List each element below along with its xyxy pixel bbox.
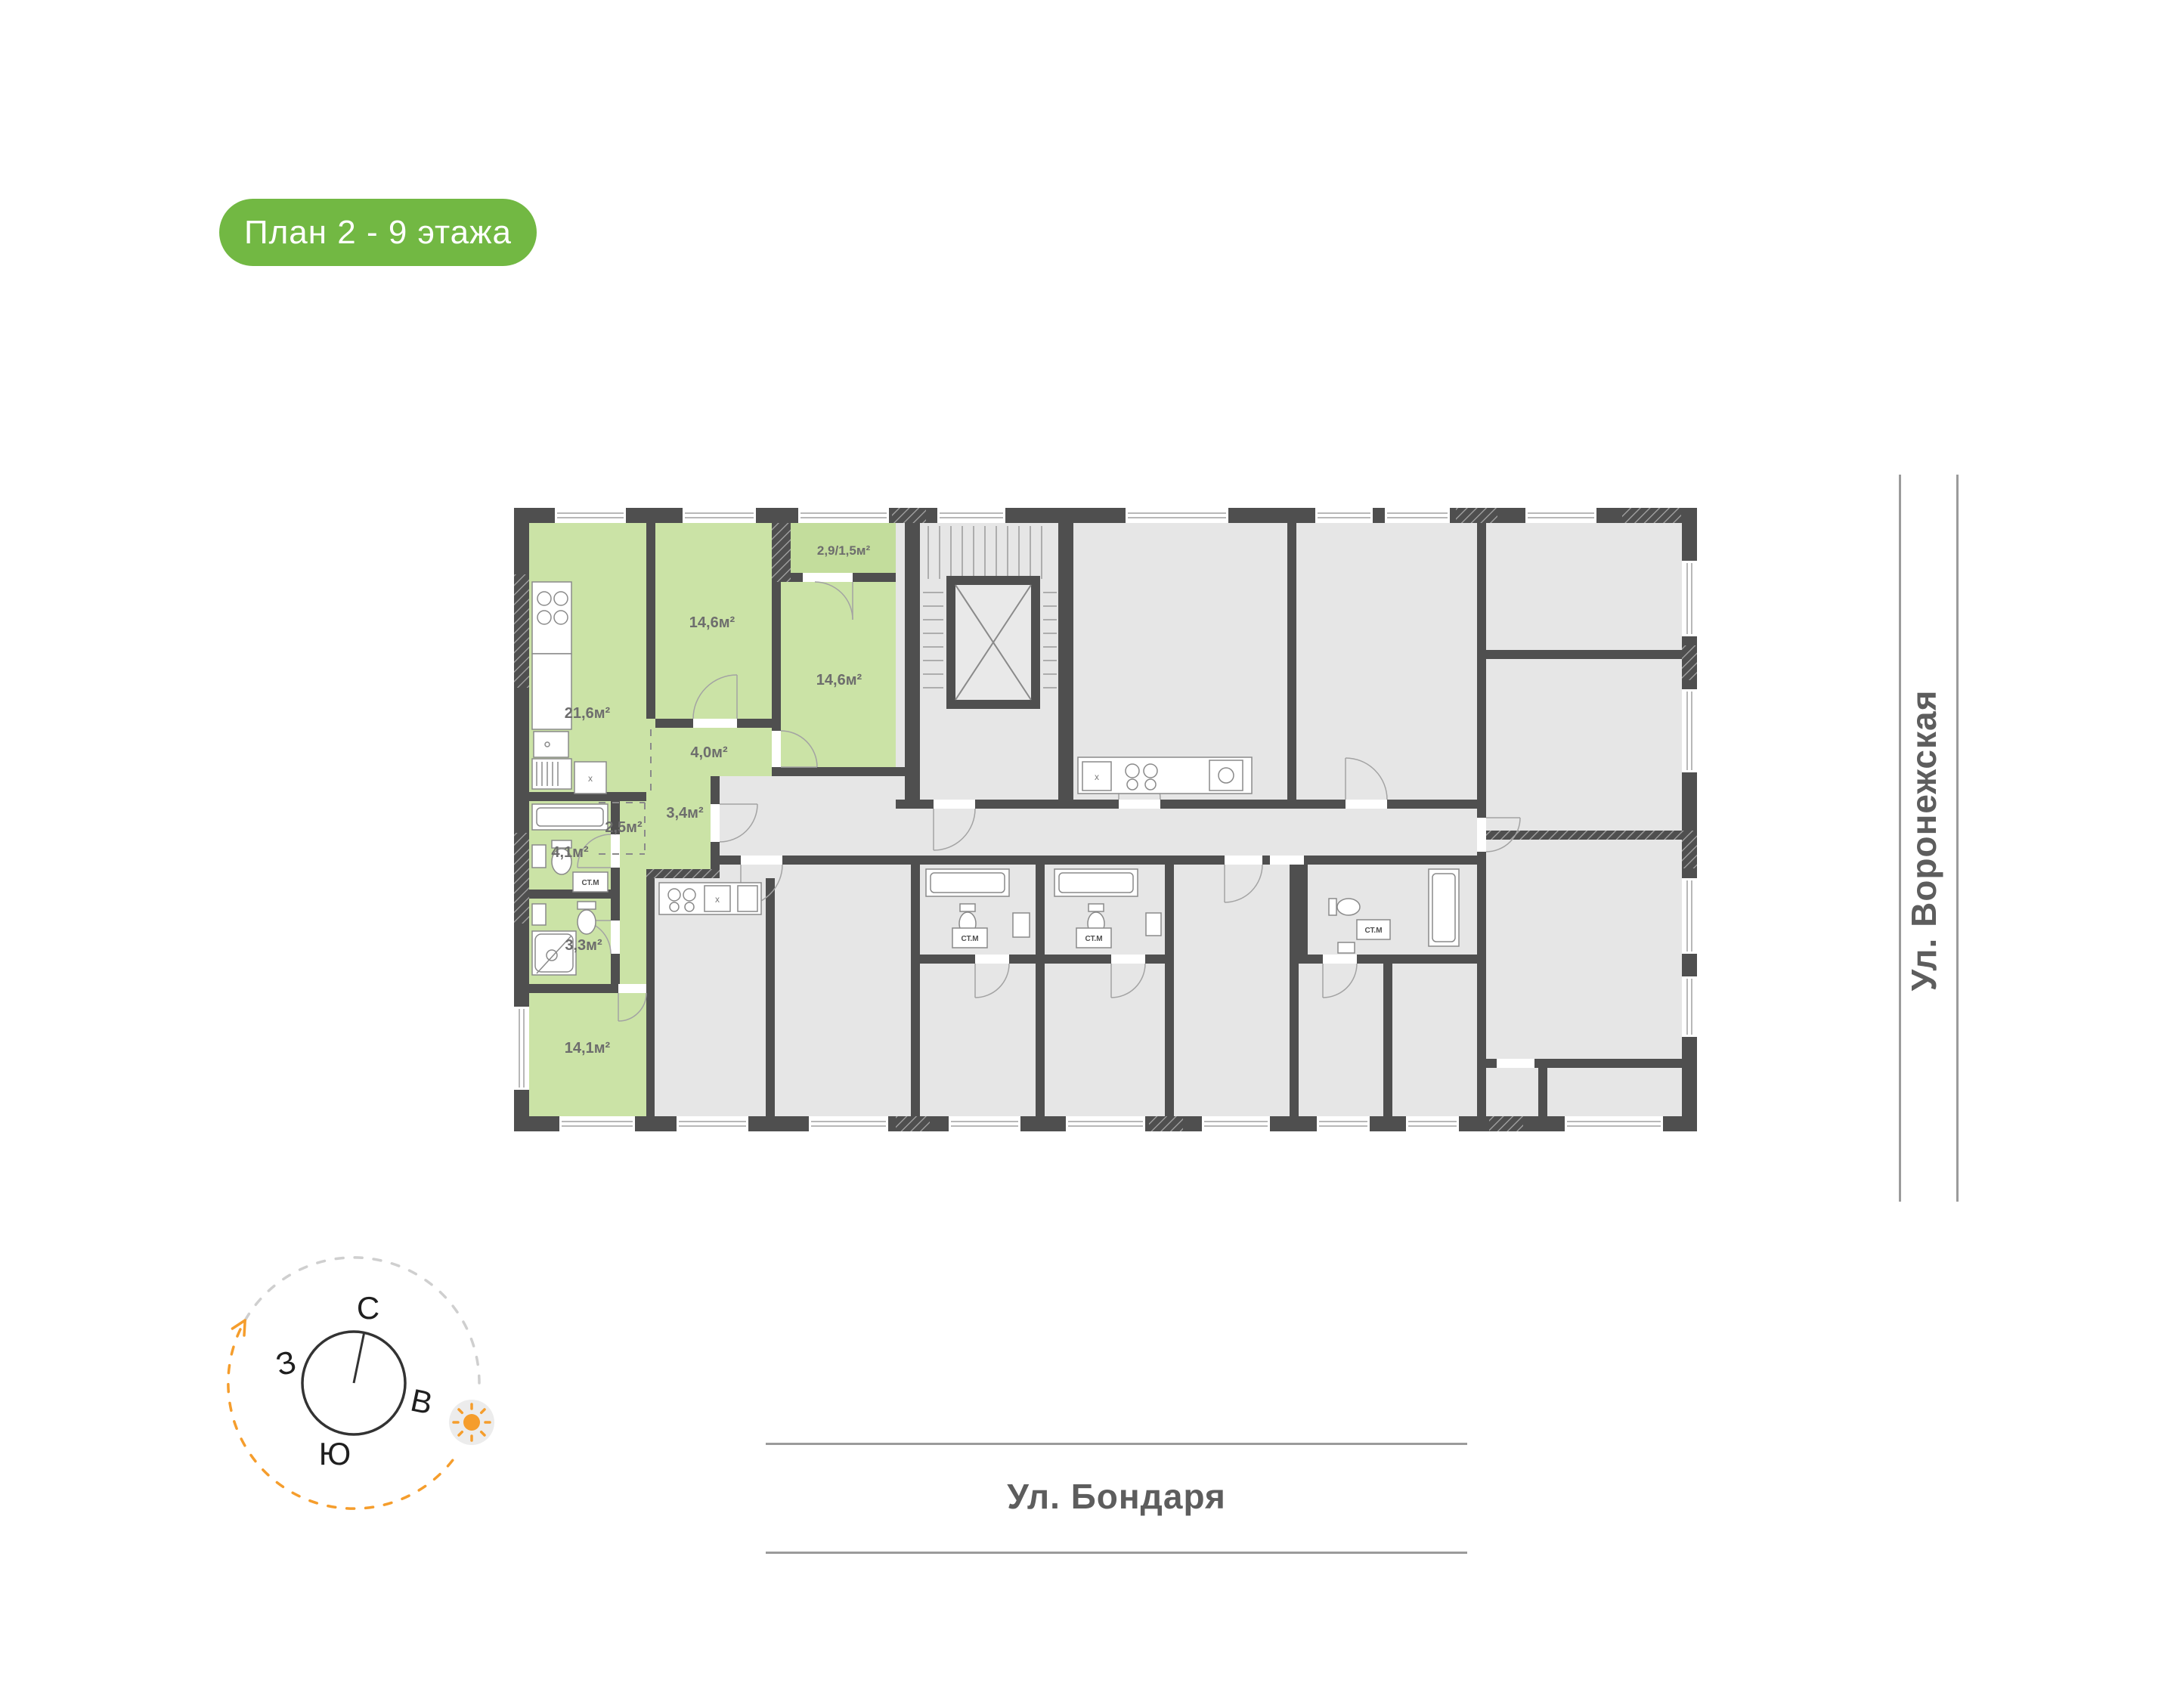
room-area-label: 21,6м² <box>565 705 611 722</box>
kitchen-mark: х <box>715 894 720 905</box>
room-area-label: 14,1м² <box>565 1040 611 1057</box>
washer-label: СТ.М <box>581 879 599 887</box>
room-area-label: 14,6м² <box>689 614 735 631</box>
street-right-line-2 <box>1956 475 1959 1202</box>
room-area-label: 3,4м² <box>666 805 704 822</box>
street-right: Ул. Воронежская <box>1844 469 2011 1209</box>
kitchen-mark: х <box>588 773 593 784</box>
room-area-label: 3,3м² <box>565 937 602 954</box>
compass-svg: С З В Ю <box>195 1224 513 1542</box>
kitchen-fixtures-r1 <box>1078 757 1252 794</box>
street-bottom: Ул. Бондаря <box>766 1440 1467 1561</box>
kitchen-mark: х <box>1095 772 1099 782</box>
washer-label: СТ.М <box>1085 935 1102 943</box>
compass: С З В Ю <box>195 1224 513 1542</box>
street-right-label: Ул. Воронежская <box>1903 538 1952 1143</box>
floor-plan: 21,6м² 14,6м² 14,6м² 2,9/1,5м² 4,0м² 2,5… <box>514 508 1697 1131</box>
floor-plan-svg: 21,6м² 14,6м² 14,6м² 2,9/1,5м² 4,0м² 2,5… <box>514 508 1697 1131</box>
washer-label: СТ.М <box>1364 927 1382 935</box>
compass-north-label: С <box>357 1290 379 1326</box>
compass-east-label: В <box>407 1382 435 1422</box>
room-area-label: 4,0м² <box>690 744 728 761</box>
floor-plan-badge-label: План 2 - 9 этажа <box>244 214 512 252</box>
compass-west-label: З <box>272 1344 299 1383</box>
kitchen-fixtures-left <box>659 883 761 914</box>
street-right-line-1 <box>1899 475 1901 1202</box>
street-bottom-line-1 <box>766 1443 1467 1445</box>
room-area-label: 2,9/1,5м² <box>817 543 871 558</box>
room-area-label: 14,6м² <box>816 672 862 688</box>
sun-icon <box>449 1400 494 1445</box>
street-bottom-label: Ул. Бондаря <box>766 1476 1467 1517</box>
compass-south-label: Ю <box>319 1436 351 1471</box>
floor-plan-badge: План 2 - 9 этажа <box>219 199 537 266</box>
washer-label: СТ.М <box>961 935 978 943</box>
room-area-label: 2,5м² <box>605 819 643 836</box>
room-area-label: 4,1м² <box>551 844 589 861</box>
street-bottom-line-2 <box>766 1552 1467 1554</box>
